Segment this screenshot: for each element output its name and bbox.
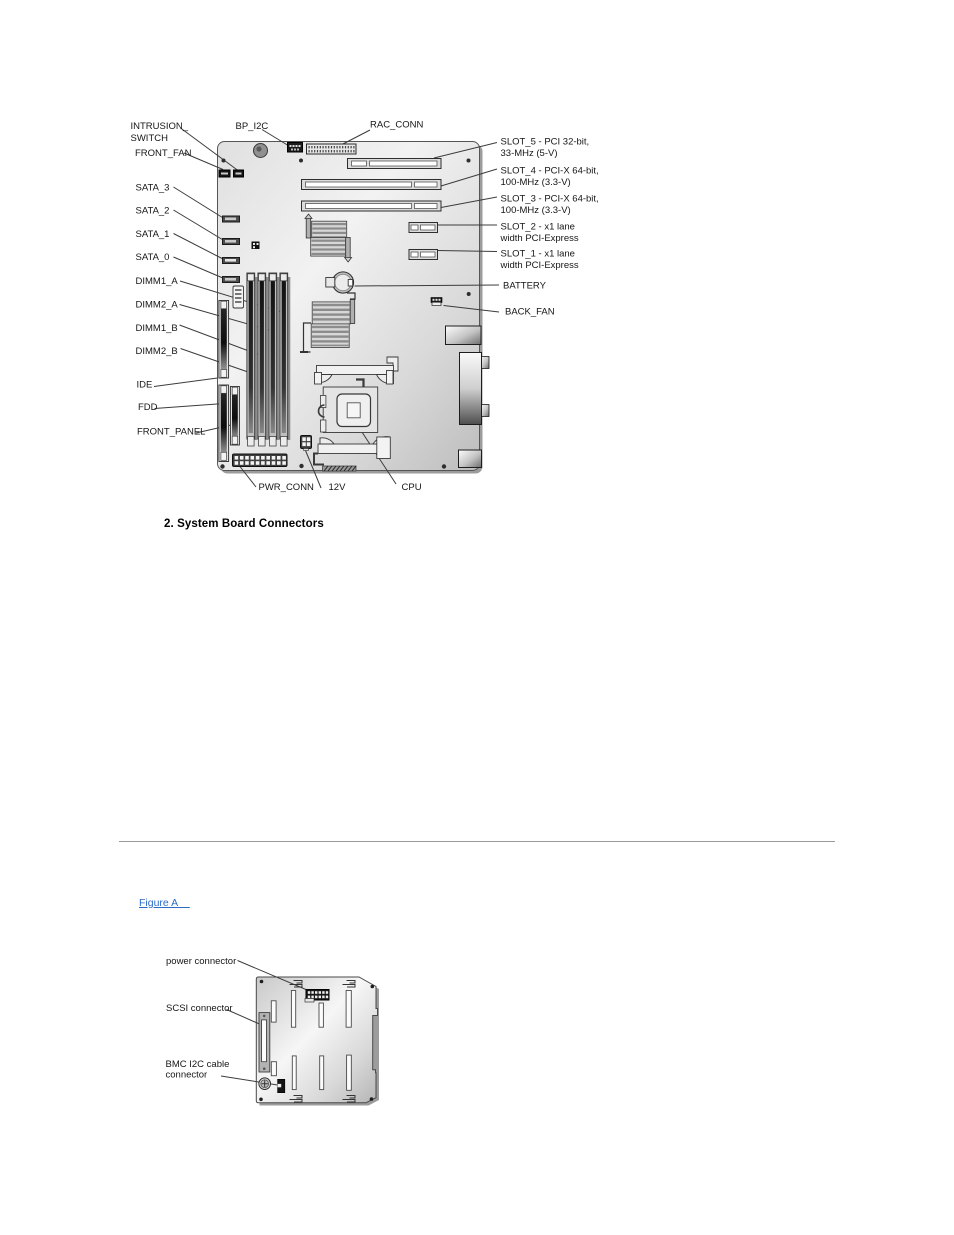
svg-text:33-MHz (5-V): 33-MHz (5-V) <box>501 148 558 159</box>
svg-text:FDD: FDD <box>138 402 158 413</box>
svg-text:SLOT_3 - PCI-X 64-bit,: SLOT_3 - PCI-X 64-bit, <box>501 194 599 205</box>
svg-text:100-MHz (3.3-V): 100-MHz (3.3-V) <box>501 177 571 188</box>
svg-text:BACK_FAN: BACK_FAN <box>505 306 555 317</box>
svg-text:SCSI connector: SCSI connector <box>166 1003 233 1014</box>
svg-text:FRONT_FAN: FRONT_FAN <box>135 148 192 159</box>
svg-text:BATTERY: BATTERY <box>503 281 547 292</box>
svg-text:width PCI-Express: width PCI-Express <box>500 233 579 244</box>
svg-text:SWITCH: SWITCH <box>131 133 169 144</box>
svg-text:DIMM2_B: DIMM2_B <box>136 346 178 357</box>
svg-text:SATA_1: SATA_1 <box>136 229 170 240</box>
svg-text:INTRUSION_: INTRUSION_ <box>131 121 189 132</box>
svg-text:SLOT_1 - x1 lane: SLOT_1 - x1 lane <box>501 248 575 259</box>
svg-text:SLOT_5 - PCI 32-bit,: SLOT_5 - PCI 32-bit, <box>501 137 590 148</box>
svg-text:FRONT_PANEL: FRONT_PANEL <box>137 426 205 437</box>
svg-text:IDE: IDE <box>137 380 153 391</box>
svg-text:SLOT_4 - PCI-X 64-bit,: SLOT_4 - PCI-X 64-bit, <box>501 165 599 176</box>
svg-text:width PCI-Express: width PCI-Express <box>500 260 579 271</box>
svg-text:RAC_CONN: RAC_CONN <box>370 120 423 131</box>
svg-text:SATA_2: SATA_2 <box>136 206 170 217</box>
svg-text:DIMM1_A: DIMM1_A <box>136 276 179 287</box>
svg-text:12V: 12V <box>329 482 347 493</box>
svg-text:PWR_CONN: PWR_CONN <box>259 482 315 493</box>
svg-text:SATA_3: SATA_3 <box>136 183 170 194</box>
svg-text:power connector: power connector <box>166 956 236 967</box>
svg-text:SATA_0: SATA_0 <box>136 252 170 263</box>
svg-text:BP_I2C: BP_I2C <box>236 121 269 132</box>
svg-text:100-MHz (3.3-V): 100-MHz (3.3-V) <box>501 205 571 216</box>
svg-text:DIMM1_B: DIMM1_B <box>136 323 178 334</box>
svg-text:connector: connector <box>166 1069 208 1080</box>
svg-text:DIMM2_A: DIMM2_A <box>136 300 179 311</box>
svg-text:SLOT_2 - x1 lane: SLOT_2 - x1 lane <box>501 221 575 232</box>
svg-text:CPU: CPU <box>402 482 422 493</box>
